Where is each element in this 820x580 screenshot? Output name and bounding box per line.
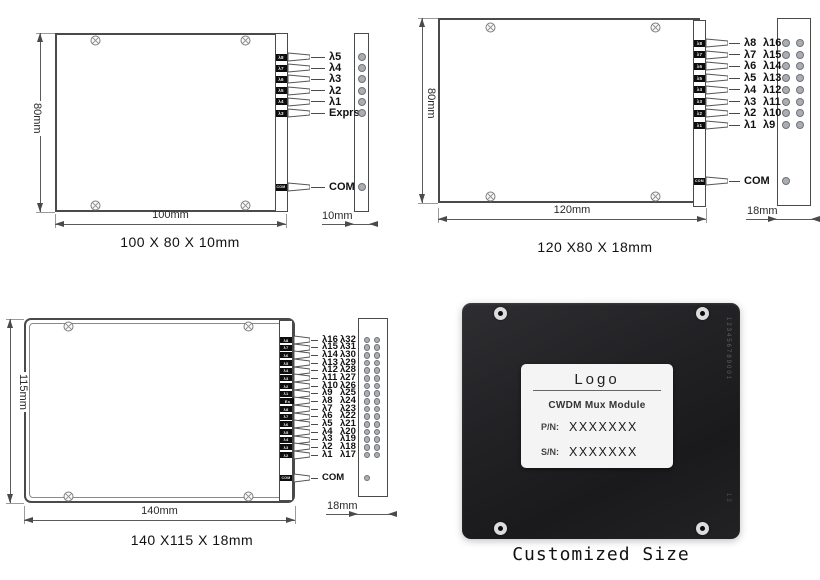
leader-line [729,66,740,67]
extension-line [438,208,439,223]
port-label-secondary: λ22 [340,410,356,423]
size-caption: 100 X 80 X 10mm [80,234,280,250]
adapter-dot [358,87,366,95]
adapter-dot [374,390,381,397]
fiber-plug-icon [294,412,310,422]
adapter-dot [364,444,371,451]
port-label: λ3 [744,95,756,109]
fiber-plug-icon [706,38,728,48]
adapter-dot [364,360,371,367]
port-tag: λ8 [280,337,292,343]
adapter-dot [374,383,381,390]
fiber-plug-icon [294,350,310,360]
adapter-dot [796,74,804,82]
logo-text: Logo [521,371,673,388]
width-dimension-line [55,224,286,225]
port-tag: λ6 [280,352,292,358]
port-tag: λ7 [280,345,292,351]
module-body: Logo CWDM Mux Module P/N:XXXXXXX S/N:XXX… [462,303,740,539]
port-tag: λ7 [280,414,292,420]
height-dimension-label: 115mm [17,372,29,412]
leader-line [311,424,318,425]
adapter-dot [364,337,371,344]
adapter-dot [358,75,366,83]
adapter-dot [364,375,371,382]
width-dimension-line [438,219,706,220]
module-outline [24,318,295,503]
port-tag: λ3 [276,110,287,117]
adapter-dot [374,352,381,359]
port-tag: λ3 [280,375,292,381]
port-tag: λ4 [280,437,292,443]
extension-line [24,506,25,524]
fiber-plug-icon [294,381,310,391]
port-label-secondary: λ21 [340,418,356,431]
port-tag: λ5 [694,75,705,82]
part-number-row: P/N:XXXXXXX [541,418,673,436]
leader-line [729,113,740,114]
leader-line [729,43,740,44]
leader-line [311,355,318,356]
leader-line [729,101,740,102]
port-label-secondary: λ13 [763,71,781,85]
height-dimension-label: 80mm [31,101,43,136]
fiber-plug-icon [706,97,728,107]
module-inner-wall [29,323,290,498]
adapter-dot [374,375,381,382]
extension-line [6,503,24,504]
fiber-plug-icon [294,442,310,452]
fiber-plug-icon [294,450,310,460]
port-label-secondary: λ26 [340,380,356,393]
faceplate-side-view [354,33,369,212]
adapter-dot [782,177,790,185]
fiber-plug-icon [288,52,310,62]
fiber-plug-icon [706,108,728,118]
port-label: λ6 [322,410,333,423]
fiber-plug-icon [706,176,728,186]
adapter-dot [782,121,790,129]
screw-hole-icon [696,307,709,320]
width-dimension-line [24,520,295,521]
extension-line [418,18,438,19]
height-dimension-line [40,33,41,212]
port-tag: λ2 [280,452,292,458]
width-dimension-label: 120mm [438,204,706,216]
port-tag: λ4 [276,98,287,105]
port-label: λ3 [322,433,333,446]
fiber-plug-icon [294,435,310,445]
leader-line [311,432,318,433]
port-label-secondary: λ14 [763,59,781,73]
leader-line [311,409,318,410]
screw-icon [650,191,661,202]
leader-line [311,447,318,448]
extension-line [295,506,296,524]
port-label-secondary: λ16 [763,36,781,50]
com-port-label: COM [744,174,770,188]
serial-number-row: S/N:XXXXXXX [541,443,673,461]
port-label-secondary: λ11 [763,95,781,109]
port-label-secondary: λ17 [340,449,356,462]
port-label-secondary: λ12 [763,83,781,97]
port-tag: λ8 [280,406,292,412]
extension-line [36,33,55,34]
port-tag: λ8 [276,54,287,61]
fiber-plug-icon [706,120,728,130]
screw-icon [243,321,254,332]
fiber-plug-icon [294,473,310,483]
port-label: λ4 [329,61,341,75]
port-tag: λ6 [280,421,292,427]
port-label: Exprss [329,106,366,120]
screw-icon [90,35,101,46]
port-tag: λ8 [694,40,705,47]
port-label-secondary: λ20 [340,426,356,439]
extension-line [706,208,707,223]
fiber-plug-icon [288,182,310,192]
com-port-label: COM [322,472,344,485]
screw-icon [90,200,101,211]
adapter-dot [364,406,371,413]
adapter-dot [364,367,371,374]
adapter-dot [364,475,371,482]
leader-line [311,455,318,456]
photo-caption: Customized Size [462,544,740,565]
adapter-dot [364,436,371,443]
adapter-dot [782,74,790,82]
leader-line [729,125,740,126]
port-tag: λ7 [276,65,287,72]
port-label: λ15 [322,341,338,354]
extension-line [6,319,24,320]
port-label: λ9 [322,387,333,400]
port-label-secondary: λ32 [340,334,356,347]
adapter-dot [358,53,366,61]
adapter-dot [796,62,804,70]
leader-line [311,57,325,58]
port-label-secondary: λ10 [763,106,781,120]
screw-icon [63,321,74,332]
adapter-dot [374,452,381,459]
molded-scale-marks: 123456789001 [725,317,731,381]
adapter-dot [374,444,381,451]
adapter-dot [364,383,371,390]
port-label: λ1 [322,449,333,462]
port-label: λ2 [329,84,341,98]
port-tag: λ5 [276,87,287,94]
adapter-dot [374,421,381,428]
port-tag: COM [694,178,705,185]
module-outline [55,33,286,212]
width-dimension-label: 100mm [55,209,286,221]
adapter-dot [364,344,371,351]
port-label: λ4 [322,426,333,439]
depth-dimension-line [326,514,396,515]
port-tag: λ6 [276,76,287,83]
port-label: λ8 [744,36,756,50]
port-tag: λ2 [694,110,705,117]
adapter-dot [364,452,371,459]
port-label: λ10 [322,380,338,393]
port-label: λ12 [322,364,338,377]
fiber-plug-icon [706,61,728,71]
leader-line [311,393,318,394]
port-label-secondary: λ29 [340,357,356,370]
adapter-dot [358,98,366,106]
adapter-dot [374,436,381,443]
size-caption: 120 X80 X 18mm [495,239,695,255]
logo-underline [533,390,661,391]
port-label-secondary: λ28 [340,364,356,377]
fiber-plug-icon [294,366,310,376]
port-label: λ1 [744,118,756,132]
adapter-dot [374,360,381,367]
fiber-plug-icon [288,97,310,107]
port-label: λ5 [744,71,756,85]
port-tag: λ6 [694,63,705,70]
adapter-dot [796,86,804,94]
port-label: λ16 [322,334,338,347]
height-dimension-label: 80mm [425,86,437,121]
port-label: λ13 [322,357,338,370]
port-label: λ11 [322,372,337,385]
fiber-plug-icon [294,389,310,399]
screw-hole-icon [494,522,507,535]
port-label-secondary: λ18 [340,441,356,454]
leader-line [311,90,325,91]
fiber-plug-icon [294,335,310,345]
port-label: λ2 [744,106,756,120]
extension-line [418,203,438,204]
leader-line [311,347,318,348]
adapter-dot [374,429,381,436]
port-tag: λ3 [280,444,292,450]
fiber-plug-icon [288,108,310,118]
port-tag: λ5 [280,429,292,435]
fiber-plug-icon [294,419,310,429]
adapter-dot [364,429,371,436]
adapter-dot [796,109,804,117]
leader-line [311,187,325,188]
adapter-dot [364,352,371,359]
port-label: λ8 [322,395,333,408]
sn-key: S/N: [541,447,569,457]
port-label: λ2 [322,441,333,454]
port-tag: λ4 [694,86,705,93]
fiber-plug-icon [706,73,728,83]
port-tag: Ex [280,398,295,404]
fiber-plug-icon [294,396,310,406]
product-title: CWDM Mux Module [521,400,673,411]
port-label: λ1 [329,95,341,109]
screw-icon [240,35,251,46]
port-tag: COM [280,475,292,481]
leader-line [729,89,740,90]
adapter-dot [374,344,381,351]
port-label-secondary: λ23 [340,403,356,416]
depth-dimension-label: 10mm [322,210,353,222]
fiber-plug-icon [294,427,310,437]
port-label: λ3 [329,72,341,86]
adapter-dot [358,183,366,191]
screw-icon [240,200,251,211]
fiber-plug-icon [288,86,310,96]
leader-line [311,363,318,364]
port-label-secondary: λ15 [763,48,781,62]
leader-line [311,68,325,69]
leader-line [311,370,318,371]
faceplate-side-view [777,18,811,206]
extension-line [55,214,56,228]
adapter-strip [275,33,288,212]
adapter-dot [358,109,366,117]
port-label: λ7 [744,48,756,62]
molded-scale-marks: 12 [725,493,731,504]
stage: 80mm 100mm 10mm 100 X 80 X 10mm λ8λ5λ7λ4… [0,0,820,580]
fiber-plug-icon [706,85,728,95]
adapter-dot [364,390,371,397]
leader-line [311,401,318,402]
height-dimension-line [422,18,423,203]
width-dimension-label: 140mm [24,505,295,517]
adapter-dot [782,109,790,117]
leader-line [311,340,318,341]
leader-line [311,416,318,417]
pn-value: XXXXXXX [569,420,638,434]
adapter-dot [374,367,381,374]
adapter-dot [796,51,804,59]
adapter-dot [364,413,371,420]
screw-icon [243,491,254,502]
port-label: λ4 [744,83,756,97]
fiber-plug-icon [294,358,310,368]
leader-line [311,113,325,114]
port-label-secondary: λ25 [340,387,356,400]
fiber-plug-icon [294,343,310,353]
pn-key: P/N: [541,422,569,432]
port-label: λ7 [322,403,333,416]
extension-line [36,212,55,213]
screw-icon [485,22,496,33]
adapter-dot [782,51,790,59]
leader-line [311,101,325,102]
adapter-dot [374,398,381,405]
screw-icon [63,491,74,502]
product-label: Logo CWDM Mux Module P/N:XXXXXXX S/N:XXX… [521,364,673,468]
adapter-dot [374,337,381,344]
adapter-dot [374,413,381,420]
com-port-label: COM [329,180,355,194]
module-outline [438,18,700,203]
screw-hole-icon [494,307,507,320]
adapter-dot [782,86,790,94]
faceplate-side-view [358,318,388,497]
port-tag: λ5 [280,360,292,366]
adapter-dot [782,98,790,106]
port-label: λ5 [329,50,341,64]
leader-line [311,79,325,80]
port-tag: λ7 [694,51,705,58]
adapter-dot [358,64,366,72]
fiber-plug-icon [294,373,310,383]
fiber-plug-icon [288,74,310,84]
port-label-secondary: λ30 [340,349,356,362]
depth-dimension-label: 18mm [327,500,358,512]
depth-dimension-line [746,219,818,220]
leader-line [311,439,318,440]
port-label-secondary: λ19 [340,433,356,446]
screw-icon [485,191,496,202]
height-dimension-line [10,319,11,503]
depth-dimension-line [322,224,376,225]
port-label-secondary: λ24 [340,395,356,408]
port-label: λ5 [322,418,333,431]
port-tag: λ3 [694,98,705,105]
leader-line [311,478,318,479]
adapter-dot [796,121,804,129]
size-caption: 140 X115 X 18mm [92,532,292,548]
port-label-secondary: λ31 [340,341,356,354]
adapter-dot [782,39,790,47]
port-label-secondary: λ9 [763,118,775,132]
extension-line [286,214,287,228]
adapter-dot [374,406,381,413]
port-tag: λ1 [280,391,292,397]
port-tag: λ4 [280,368,292,374]
port-label: λ6 [744,59,756,73]
adapter-strip [279,320,293,501]
leader-line [729,54,740,55]
screw-hole-icon [696,522,709,535]
screw-icon [650,22,661,33]
leader-line [729,78,740,79]
fiber-plug-icon [288,63,310,73]
adapter-dot [796,39,804,47]
adapter-dot [364,421,371,428]
adapter-dot [782,62,790,70]
fiber-plug-icon [294,404,310,414]
product-photo: Logo CWDM Mux Module P/N:XXXXXXX S/N:XXX… [462,303,740,580]
port-label: λ14 [322,349,338,362]
fiber-plug-icon [706,50,728,60]
adapter-dot [364,398,371,405]
port-tag: λ1 [694,122,705,129]
adapter-strip [693,20,706,207]
port-label-secondary: λ27 [340,372,356,385]
port-tag: λ2 [280,383,292,389]
sn-value: XXXXXXX [569,445,638,459]
leader-line [311,378,318,379]
port-tag: COM [276,184,287,191]
leader-line [729,181,740,182]
leader-line [311,386,318,387]
depth-dimension-label: 18mm [747,205,778,217]
adapter-dot [796,98,804,106]
